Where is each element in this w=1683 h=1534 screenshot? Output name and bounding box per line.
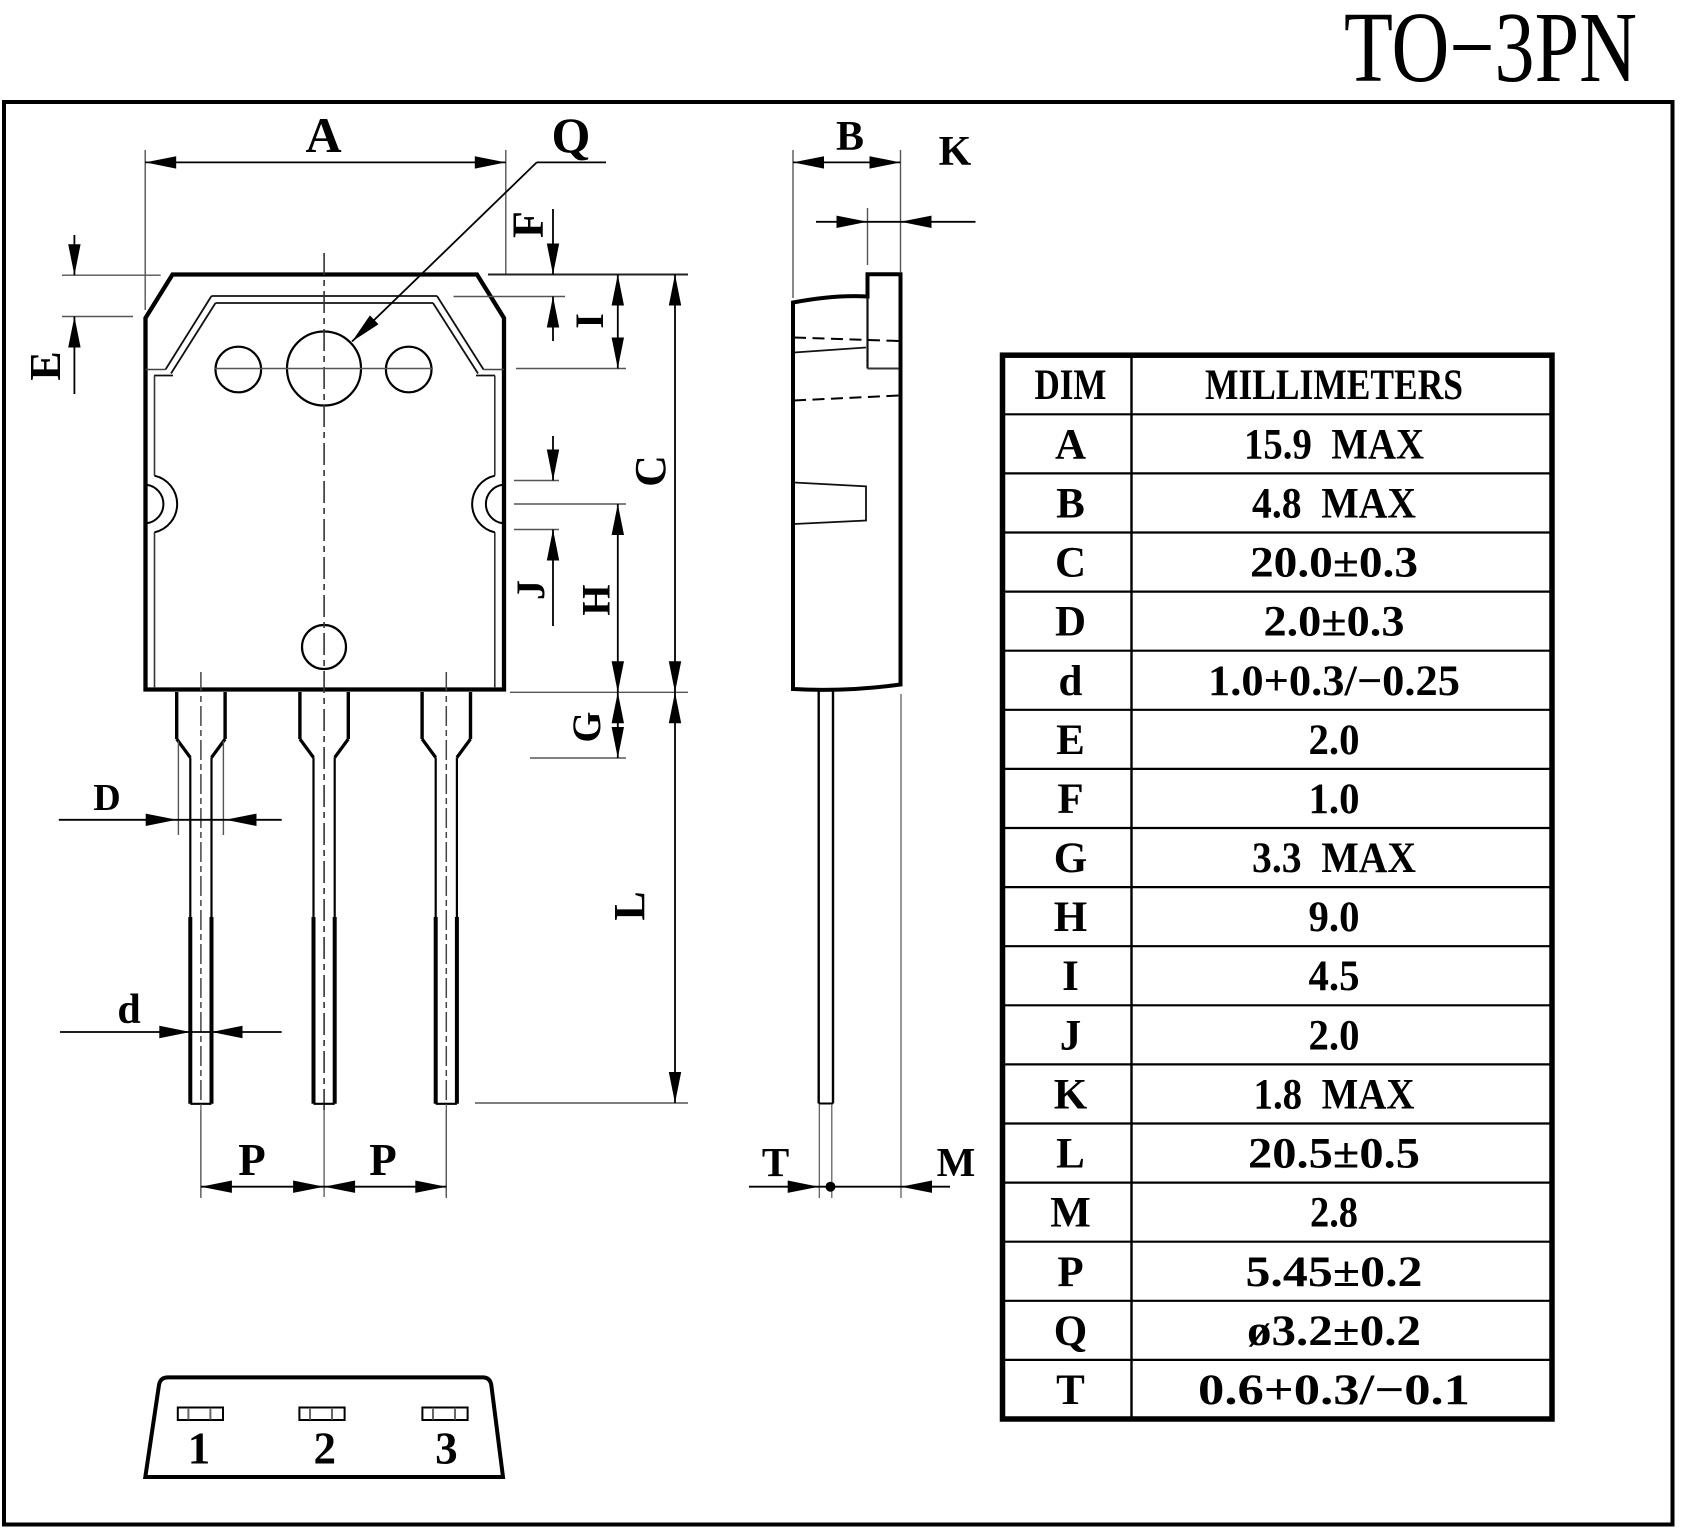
svg-text:A: A bbox=[1055, 421, 1086, 468]
svg-text:J: J bbox=[1060, 1012, 1082, 1059]
svg-text:0.6+0.3/−0.1: 0.6+0.3/−0.1 bbox=[1198, 1367, 1470, 1414]
svg-text:1.0+0.3/−0.25: 1.0+0.3/−0.25 bbox=[1208, 658, 1460, 705]
svg-text:TO−3PN: TO−3PN bbox=[1344, 0, 1637, 103]
svg-text:F: F bbox=[504, 211, 553, 238]
svg-text:1.0: 1.0 bbox=[1309, 776, 1360, 823]
svg-text:H: H bbox=[1054, 894, 1087, 941]
svg-text:ø3.2±0.2: ø3.2±0.2 bbox=[1247, 1308, 1421, 1355]
svg-text:E: E bbox=[21, 351, 70, 380]
svg-text:J: J bbox=[508, 580, 553, 600]
svg-text:H: H bbox=[574, 584, 619, 615]
svg-text:20.5±0.5: 20.5±0.5 bbox=[1248, 1131, 1420, 1178]
svg-text:T: T bbox=[762, 1139, 789, 1185]
svg-text:MILLIMETERS: MILLIMETERS bbox=[1205, 362, 1463, 409]
svg-text:P: P bbox=[1057, 1249, 1083, 1296]
svg-text:3.3 MAX: 3.3 MAX bbox=[1252, 835, 1416, 882]
svg-text:K: K bbox=[939, 129, 972, 175]
svg-text:P: P bbox=[238, 1135, 266, 1185]
svg-text:D: D bbox=[1055, 599, 1086, 646]
svg-text:B: B bbox=[1056, 481, 1085, 528]
svg-text:15.9 MAX: 15.9 MAX bbox=[1244, 421, 1424, 468]
svg-text:2.0: 2.0 bbox=[1309, 717, 1360, 764]
svg-text:C: C bbox=[626, 455, 675, 487]
svg-text:2.0±0.3: 2.0±0.3 bbox=[1264, 599, 1405, 646]
svg-text:A: A bbox=[306, 107, 342, 163]
svg-text:L: L bbox=[1056, 1131, 1085, 1178]
svg-text:9.0: 9.0 bbox=[1309, 894, 1360, 941]
svg-text:I: I bbox=[567, 313, 612, 329]
svg-text:B: B bbox=[836, 114, 864, 160]
svg-text:d: d bbox=[1059, 658, 1083, 705]
svg-text:2.8: 2.8 bbox=[1310, 1190, 1358, 1237]
svg-text:1.8 MAX: 1.8 MAX bbox=[1254, 1071, 1415, 1118]
svg-text:DIM: DIM bbox=[1035, 362, 1107, 409]
svg-text:4.5: 4.5 bbox=[1309, 953, 1360, 1000]
svg-text:M: M bbox=[937, 1139, 976, 1185]
svg-text:d: d bbox=[117, 987, 140, 1033]
svg-text:Q: Q bbox=[552, 107, 591, 163]
svg-text:T: T bbox=[1056, 1367, 1085, 1414]
svg-text:2.0: 2.0 bbox=[1309, 1012, 1360, 1059]
svg-text:M: M bbox=[1050, 1190, 1091, 1237]
svg-text:4.8 MAX: 4.8 MAX bbox=[1252, 481, 1416, 528]
svg-text:I: I bbox=[1062, 953, 1079, 1000]
svg-text:K: K bbox=[1054, 1071, 1088, 1118]
svg-text:Q: Q bbox=[1054, 1308, 1087, 1355]
svg-text:G: G bbox=[1054, 835, 1087, 882]
svg-text:E: E bbox=[1056, 717, 1085, 764]
svg-text:3: 3 bbox=[435, 1424, 458, 1474]
svg-text:D: D bbox=[93, 777, 120, 819]
svg-text:2: 2 bbox=[314, 1424, 337, 1474]
svg-text:P: P bbox=[369, 1135, 397, 1185]
svg-text:20.0±0.3: 20.0±0.3 bbox=[1250, 540, 1418, 587]
svg-text:C: C bbox=[1055, 540, 1086, 587]
svg-text:L: L bbox=[605, 891, 654, 920]
svg-text:F: F bbox=[1057, 776, 1083, 823]
svg-text:5.45±0.2: 5.45±0.2 bbox=[1246, 1249, 1423, 1296]
svg-text:G: G bbox=[564, 711, 609, 742]
svg-text:1: 1 bbox=[188, 1424, 211, 1474]
